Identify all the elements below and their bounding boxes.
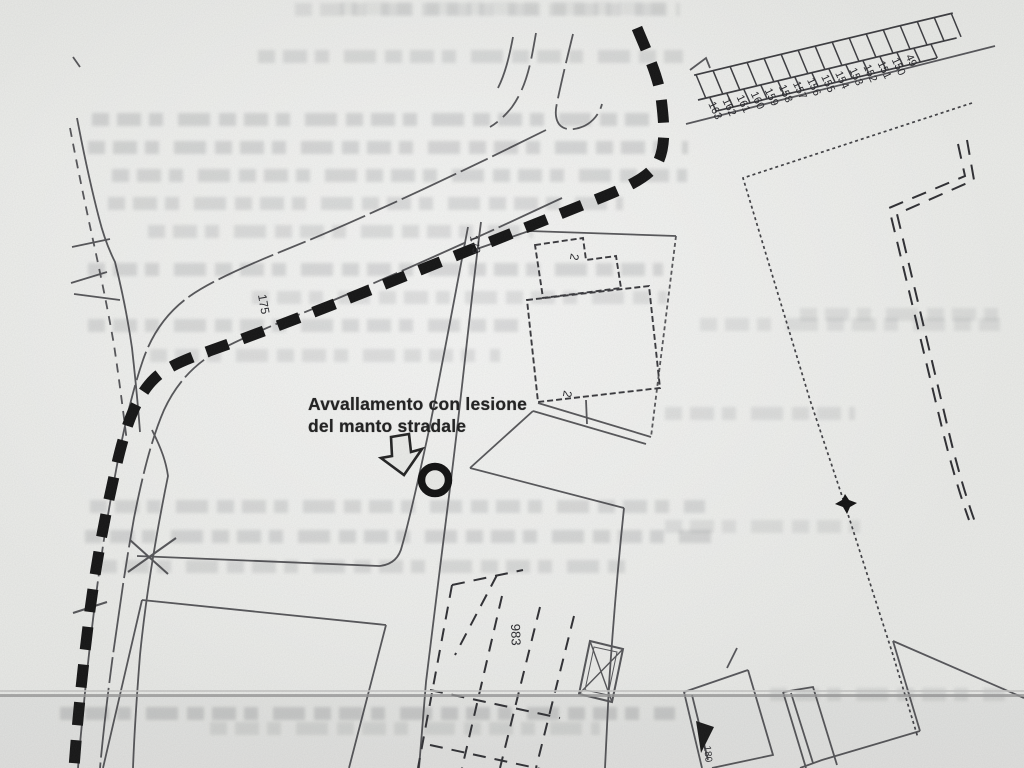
- scanned-map-page: 4915015115215315415515615715815916016116…: [0, 0, 1024, 768]
- strip-numbers: 4915015115215315415515615715815916016116…: [705, 52, 921, 123]
- road-edge-south: [100, 198, 562, 768]
- parcel-strip: 4915015115215315415515615715815916016116…: [692, 13, 967, 124]
- road-label-175: 175: [255, 293, 272, 315]
- defect-pointer: [381, 434, 449, 494]
- page-footer-shade: [0, 695, 1024, 768]
- annotation-line1: Avvallamento con lesione: [308, 394, 527, 416]
- left-road-dashed-edge: [70, 128, 127, 442]
- main-parcel-boundary: [743, 103, 972, 738]
- cadastral-map: 4915015115215315415515615715815916016116…: [0, 0, 1024, 768]
- annotation-line2: del manto stradale: [308, 416, 527, 438]
- junction-curve: [490, 33, 536, 127]
- side-street-stubs: [71, 239, 120, 300]
- building-mark: 2: [560, 389, 575, 398]
- building-mark: 2: [567, 252, 582, 261]
- left-road-edge: [77, 118, 140, 432]
- building-outline: [527, 286, 660, 402]
- scan-artifact-line: [0, 690, 1024, 692]
- star-marker: [835, 494, 857, 514]
- junction-curve: [556, 34, 602, 129]
- crossed-building: [579, 641, 623, 702]
- tick-mark: [73, 57, 80, 67]
- defect-circle: [422, 467, 449, 494]
- building-outline: [535, 238, 621, 298]
- down-arrow-icon: [381, 434, 422, 475]
- parcel-label-983: 983: [508, 624, 524, 646]
- road-edge-north: [78, 130, 546, 768]
- map-linework: [70, 33, 1024, 768]
- junction-curve: [498, 37, 513, 88]
- dashed-double-boundary: [889, 140, 975, 522]
- defect-annotation: Avvallamento con lesione del manto strad…: [308, 394, 527, 437]
- buildings: [527, 238, 660, 402]
